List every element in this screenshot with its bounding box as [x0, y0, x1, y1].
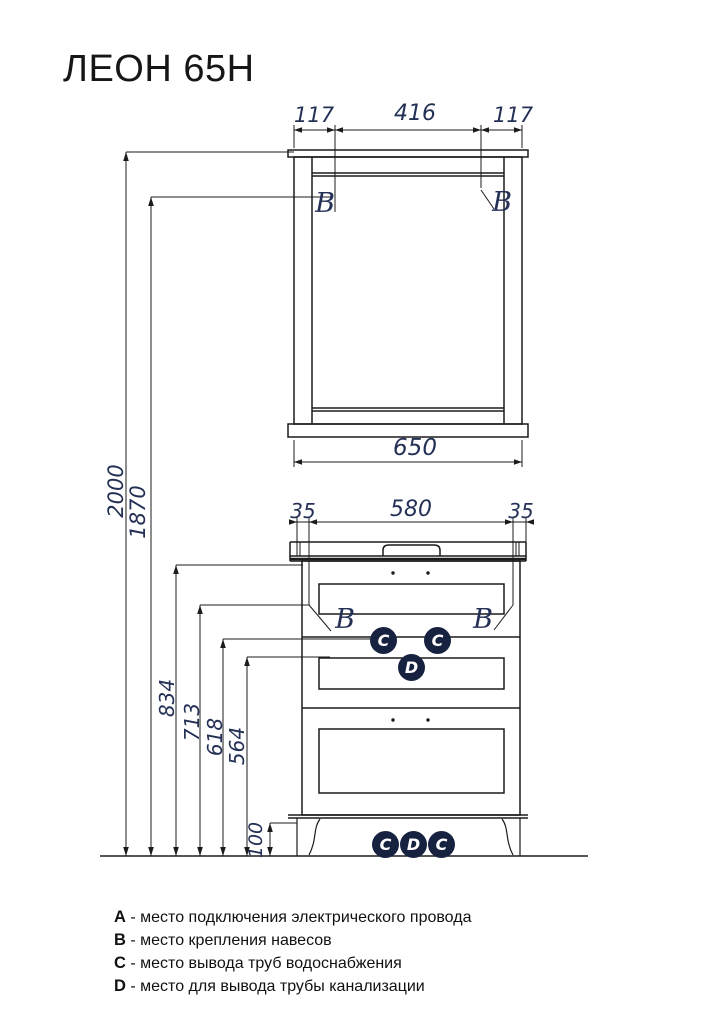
mirror-hanger-label-left: B — [313, 189, 337, 221]
water-outlet-badge-right: C — [424, 627, 451, 654]
dim-height-cabinet-top: 834 — [155, 668, 179, 728]
dim-mirror-left: 117 — [294, 103, 334, 127]
mirror-hanger-label-right: B — [490, 188, 514, 220]
dim-height-plinth: 100 — [245, 818, 267, 862]
cabinet-hanger-label-right: B — [471, 605, 495, 637]
dim-cabinet-center: 580 — [381, 497, 441, 522]
legend-key-d: D — [114, 977, 126, 995]
dim-height-cabinet-hanger: 713 — [180, 692, 204, 752]
legend-text-c: - место вывода труб водоснабжения — [130, 955, 401, 972]
dim-height-drain-outlet: 564 — [225, 716, 249, 776]
legend-key-b: B — [114, 931, 126, 949]
cabinet-hanger-label-left: B — [333, 605, 357, 637]
legend-text-b: - место крепления навесов — [130, 932, 331, 949]
dim-cabinet-right: 35 — [506, 499, 536, 523]
drawing-page: ЛЕОН 65Н 117 416 117 650 35 580 35 2000 … — [0, 0, 724, 1023]
dim-mirror-right: 117 — [493, 103, 533, 127]
handle-marks — [391, 571, 429, 721]
floor-badge-water-right: C — [428, 831, 455, 858]
cabinet-outline — [288, 542, 528, 856]
dim-height-total: 2000 — [104, 451, 128, 531]
legend-row-c: C - место вывода труб водоснабжения — [114, 952, 471, 975]
page-title: ЛЕОН 65Н — [63, 48, 255, 91]
legend-text-a: - место подключения электрического прово… — [130, 909, 471, 926]
dim-mirror-width: 650 — [385, 435, 445, 461]
legend-key-a: A — [114, 908, 126, 926]
dim-height-water-outlet: 618 — [203, 707, 227, 767]
legend-row-d: D - место для вывода трубы канализации — [114, 975, 471, 998]
legend-text-d: - место для вывода трубы канализации — [130, 978, 424, 995]
dim-height-mirror-hanger: 1870 — [126, 472, 150, 552]
water-outlet-badge-left: C — [370, 627, 397, 654]
drain-outlet-badge: D — [398, 654, 425, 681]
dim-cabinet-left: 35 — [288, 499, 318, 523]
dim-mirror-center: 416 — [385, 101, 445, 126]
legend-row-b: B - место крепления навесов — [114, 929, 471, 952]
legend-key-c: C — [114, 954, 126, 972]
legend-row-a: A - место подключения электрического про… — [114, 906, 471, 929]
legend: A - место подключения электрического про… — [114, 906, 471, 998]
floor-badge-water-left: C — [372, 831, 399, 858]
floor-badge-drain: D — [400, 831, 427, 858]
